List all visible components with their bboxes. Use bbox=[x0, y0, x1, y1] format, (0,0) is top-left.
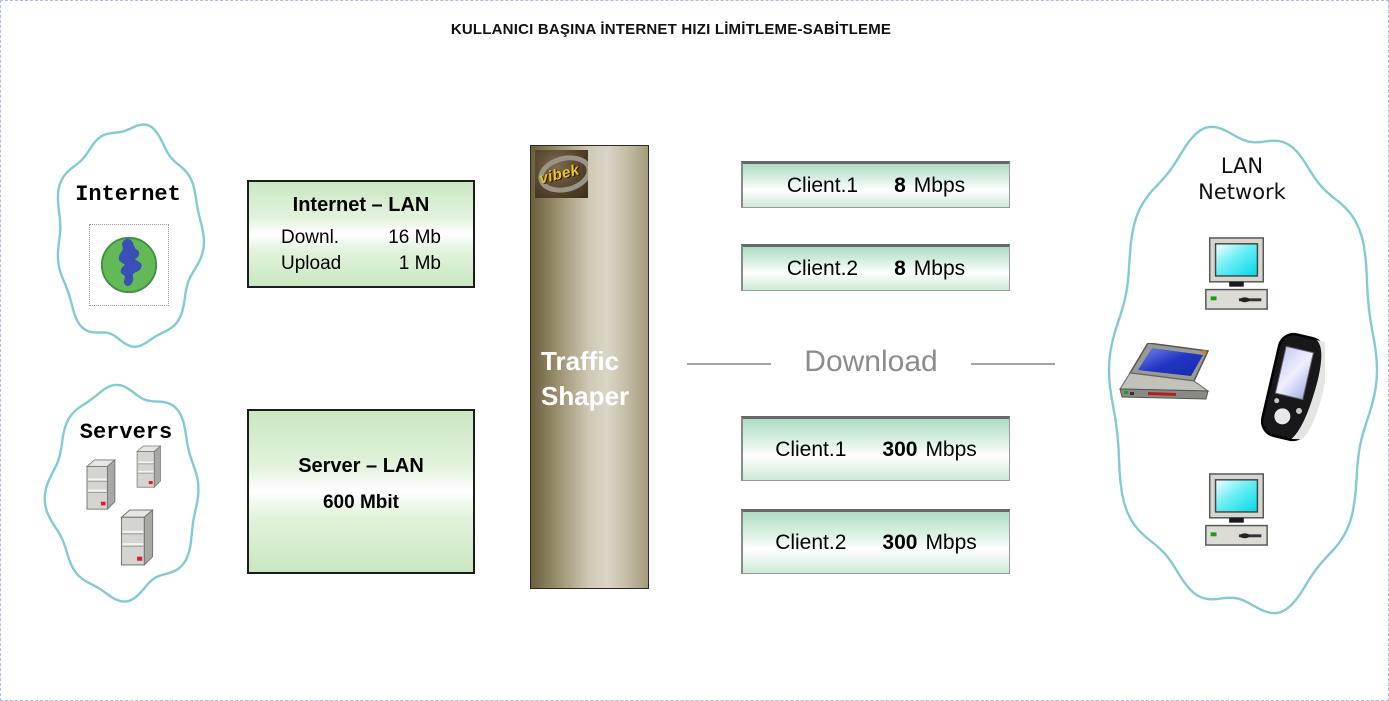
client-speed-unit: Mbps bbox=[914, 174, 965, 198]
server-lan-bandwidth: 600 Mbit bbox=[249, 492, 473, 514]
desktop-icon bbox=[1199, 473, 1273, 547]
client-bar: Client.2 300 Mbps bbox=[741, 509, 1010, 574]
client-name: Client.2 bbox=[787, 257, 858, 281]
pda-icon bbox=[1261, 332, 1325, 444]
traffic-shaper-label: Traffic Shaper bbox=[541, 344, 629, 414]
desktop-icon bbox=[1199, 237, 1273, 311]
server-icon bbox=[117, 509, 155, 567]
diagram-title: KULLANICI BAŞINA İNTERNET HIZI LİMİTLEME… bbox=[1, 21, 1341, 38]
servers-cloud bbox=[34, 373, 214, 611]
client-speed-unit: Mbps bbox=[925, 531, 976, 555]
client-speed-value: 8 bbox=[894, 257, 906, 281]
lan-network-label: LAN Network bbox=[1142, 153, 1342, 205]
internet-lan-title: Internet – LAN bbox=[249, 194, 473, 217]
server-lan-title: Server – LAN bbox=[249, 455, 473, 478]
upload-limit-row: Upload 1 Mb bbox=[281, 253, 441, 275]
client-speed-unit: Mbps bbox=[914, 257, 965, 281]
traffic-shaper: vibek Traffic Shaper bbox=[530, 145, 649, 589]
server-lan-box: Server – LAN 600 Mbit bbox=[247, 409, 475, 574]
client-name: Client.1 bbox=[787, 174, 858, 198]
divider-line-right bbox=[971, 363, 1055, 365]
client-speed-value: 300 bbox=[882, 438, 917, 462]
client-bar: Client.2 8 Mbps bbox=[741, 244, 1010, 291]
client-bar: Client.1 300 Mbps bbox=[741, 416, 1010, 481]
diagram-canvas: KULLANICI BAŞINA İNTERNET HIZI LİMİTLEME… bbox=[0, 0, 1389, 701]
servers-label: Servers bbox=[51, 420, 201, 445]
download-limit-label: Downl. bbox=[281, 227, 388, 249]
traffic-shaper-line1: Traffic bbox=[541, 344, 629, 379]
divider-line-left bbox=[687, 363, 771, 365]
upload-limit-value: 1 Mb bbox=[399, 253, 441, 275]
internet-lan-box: Internet – LAN Downl. 16 Mb Upload 1 Mb bbox=[247, 180, 475, 288]
client-speed-value: 8 bbox=[894, 174, 906, 198]
download-label: Download bbox=[771, 345, 971, 379]
client-speed-unit: Mbps bbox=[925, 438, 976, 462]
client-name: Client.2 bbox=[775, 531, 846, 555]
download-limit-value: 16 Mb bbox=[388, 227, 441, 249]
internet-label: Internet bbox=[53, 182, 203, 207]
server-icon bbox=[83, 459, 117, 511]
client-bar: Client.1 8 Mbps bbox=[741, 161, 1010, 208]
globe-icon bbox=[98, 234, 160, 296]
lan-label-line2: Network bbox=[1142, 179, 1342, 205]
globe-frame bbox=[89, 224, 169, 306]
download-limit-row: Downl. 16 Mb bbox=[281, 227, 441, 249]
traffic-shaper-line2: Shaper bbox=[541, 379, 629, 414]
vibek-logo: vibek bbox=[535, 150, 588, 198]
laptop-icon bbox=[1117, 343, 1219, 407]
upload-limit-label: Upload bbox=[281, 253, 399, 275]
client-name: Client.1 bbox=[775, 438, 846, 462]
lan-label-line1: LAN bbox=[1142, 153, 1342, 179]
client-speed-value: 300 bbox=[882, 531, 917, 555]
server-icon bbox=[134, 445, 162, 489]
